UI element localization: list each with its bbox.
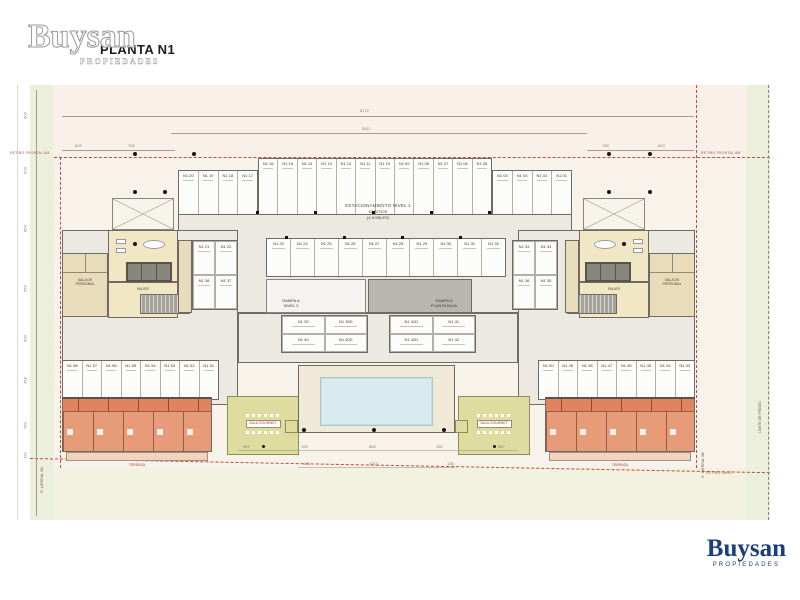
- column-marker: [459, 236, 462, 239]
- parking-stall: N1 43: [676, 361, 695, 399]
- parking-stall: N1 40D: [325, 334, 368, 352]
- elevator-cab: [142, 264, 155, 280]
- dim-left-4: 600: [23, 328, 28, 350]
- elevator-cab: [128, 264, 141, 280]
- stall-pairs-right: N1 33N1 34N1 36N1 35: [512, 240, 558, 310]
- parking-stall: N1 03: [513, 171, 533, 214]
- parking-stall: N1 57: [83, 361, 103, 399]
- setback-line-right: [696, 85, 697, 468]
- column-dot: [163, 190, 167, 194]
- parking-stall: N1 46: [617, 361, 637, 399]
- dim-b1-4: 987: [498, 444, 505, 449]
- lobby-table: [594, 240, 616, 249]
- parking-stall: N1 21: [193, 241, 215, 275]
- central-floor: [238, 313, 518, 363]
- parking-stall: N1 41D: [390, 316, 433, 334]
- brand-watermark-sub: PROPIEDADES: [80, 57, 159, 66]
- stall-row-mid: N1 23N1 24N1 25N1 26N1 27N1 28N1 29N1 30…: [266, 238, 506, 277]
- dim-b1-1: 192: [301, 444, 308, 449]
- parking-stall: N1 20: [179, 171, 199, 214]
- parking-stall: N1 56: [102, 361, 122, 399]
- parking-stall: N1 53: [161, 361, 181, 399]
- wall-line: [672, 254, 673, 272]
- parking-stall: N1 04: [493, 171, 513, 214]
- parking-stall: N1 45: [637, 361, 657, 399]
- parking-stall: N1 24: [291, 239, 315, 276]
- utility-room-right: [565, 240, 579, 313]
- rear-setback-zone: [54, 468, 746, 520]
- parking-stall: N1 39: [282, 316, 325, 334]
- dim-798-right: 798: [602, 143, 609, 148]
- parking-stall: N1 40: [282, 334, 325, 352]
- parking-stall: N1 42: [433, 334, 476, 352]
- column-marker: [488, 211, 491, 214]
- dim-603-right: 603: [658, 143, 665, 148]
- parking-stall: N1 51: [200, 361, 219, 399]
- apartment-upper-rooms: [63, 399, 211, 412]
- elevators-right: [585, 262, 631, 282]
- dim-line: [587, 150, 694, 151]
- column-dot: [648, 190, 652, 194]
- parking-stall: N1 44: [656, 361, 676, 399]
- staff-room-right-label: SALA DE PERSONAL: [652, 278, 692, 286]
- dim-top-total: 8172: [360, 108, 369, 113]
- dim-b1-3: 190: [436, 444, 443, 449]
- dim-left-3: 650: [23, 278, 28, 300]
- shaft-marker-left: [112, 198, 174, 230]
- gourmet-chairs: [246, 431, 281, 434]
- parking-stall: N1 39D: [325, 316, 368, 334]
- palier-right-label: PALIER: [580, 287, 648, 291]
- parking-stall: N1 17: [238, 171, 257, 214]
- parking-stall: N1 50: [539, 361, 559, 399]
- dim-line: [298, 467, 455, 468]
- dim-line: [238, 450, 518, 451]
- footer-logo: Buysan PROPIEDADES: [707, 536, 786, 568]
- lobby-sofa: [633, 239, 643, 244]
- setback-line-left: [60, 157, 61, 468]
- dim-b2-2: 136: [447, 461, 454, 466]
- column-dot: [442, 428, 446, 432]
- elevator-cab: [587, 264, 600, 280]
- parking-stall: N1 25: [315, 239, 339, 276]
- retiro-frontal-left-label: RETIRO FRONTAL 8M: [10, 151, 49, 155]
- deck-planter-right: [455, 420, 468, 433]
- column-marker: [343, 236, 346, 239]
- apartment-furniture: [550, 429, 690, 435]
- dim-left-0: 800: [23, 105, 28, 127]
- lobby-table: [143, 240, 165, 249]
- parking-stall: N1 28: [387, 239, 411, 276]
- parking-stall: N1 38: [193, 275, 215, 309]
- column-dot: [262, 445, 265, 448]
- parking-stall: N1 01: [552, 171, 571, 214]
- stall-row-top-right: N1 04N1 03N1 02N1 01: [492, 170, 572, 215]
- dim-left-5: 458: [23, 370, 28, 392]
- gourmet-room-right: SALA GOURMET: [458, 396, 530, 455]
- column-dot: [372, 428, 376, 432]
- column-dot: [302, 428, 306, 432]
- double-stalls-left: N1 39N1 39DN1 40N1 40D: [281, 315, 368, 353]
- parking-stall: N1 16: [259, 159, 278, 214]
- parking-stall: N1 06: [453, 159, 472, 214]
- parking-title: ESTACIONAMIENTO NIVEL 1 62 SITIOS (4 DOB…: [300, 203, 456, 220]
- wall-line: [650, 272, 694, 273]
- wall-line: [63, 272, 107, 273]
- wall-line: [85, 254, 86, 272]
- parking-stall: N1 18: [219, 171, 239, 214]
- elevator-cab: [601, 264, 614, 280]
- parking-stall: N1 26: [339, 239, 363, 276]
- ramp-to-level2: RAMPA A NIVEL 2: [266, 279, 366, 313]
- apartment-furniture: [67, 429, 207, 435]
- double-stalls-right: N1 41DN1 41N1 42DN1 42: [389, 315, 476, 353]
- gourmet-chairs: [477, 414, 512, 417]
- ramp-right-label: RAMPA A PLANTA BAJA: [421, 299, 467, 309]
- column-dot: [133, 152, 137, 156]
- parking-stall: N1 27: [363, 239, 387, 276]
- gourmet-chairs: [246, 414, 281, 417]
- dim-line: [62, 150, 175, 151]
- apartments-right: [545, 397, 695, 452]
- elevator-cab: [157, 264, 170, 280]
- palier-left-label: PALIER: [109, 287, 177, 291]
- parking-stall: N1 30: [434, 239, 458, 276]
- parking-stall: N1 37: [215, 275, 237, 309]
- parking-stall: N1 58: [63, 361, 83, 399]
- lobby-sofa: [633, 248, 643, 253]
- parking-stall: N1 35: [535, 275, 557, 309]
- dim-798-left: 798: [128, 143, 135, 148]
- dim-b1-0: 987: [243, 444, 250, 449]
- parking-stall: N1 54: [141, 361, 161, 399]
- dim-left-1: 629: [23, 160, 28, 182]
- frontal-setback-zone: [54, 85, 746, 157]
- parking-stall: N1 23: [267, 239, 291, 276]
- lobby-sofa: [116, 239, 126, 244]
- elevator-cab: [616, 264, 629, 280]
- stall-row-bottom-left: N1 58N1 57N1 56N1 55N1 54N1 53N1 52N1 51: [62, 360, 219, 400]
- staff-room-left-label: SALA DE PERSONAL: [65, 278, 105, 286]
- lobby-sofa: [116, 248, 126, 253]
- staff-room-left: SALA DE PERSONAL: [62, 253, 108, 317]
- parking-stall: N1 32: [482, 239, 505, 276]
- parking-stall: N1 19: [199, 171, 219, 214]
- gourmet-chairs: [477, 431, 512, 434]
- column-marker: [256, 211, 259, 214]
- dim-b2-0: 136: [303, 461, 310, 466]
- stall-row-top-left: N1 20N1 19N1 18N1 17: [178, 170, 258, 215]
- dim-b1-2: 665: [369, 444, 376, 449]
- terrace-left-label: TERRAZA: [129, 463, 145, 467]
- lateral-left-label: R. LATERAL 3M: [40, 460, 44, 500]
- parking-title-line3: (4 DOBLES): [300, 215, 456, 221]
- parking-stall: N1 36: [513, 275, 535, 309]
- terrace-strip-right: TERRAZA: [549, 452, 691, 461]
- elevators-left: [126, 262, 172, 282]
- dim-left-7: 192: [23, 445, 28, 467]
- stall-pairs-left: N1 21N1 22N1 38N1 37: [192, 240, 238, 310]
- retiro-rear-label: RETIRO LAGO: [706, 471, 732, 475]
- retiro-frontal-right-label: RETIRO FRONTAL 8M: [701, 151, 740, 155]
- column-dot: [133, 190, 137, 194]
- property-limit-label: LIMITE DE PREDIO: [758, 397, 762, 437]
- pool: [320, 377, 433, 426]
- lateral-right-label: R. LATERAL 3M: [701, 445, 705, 485]
- parking-stall: N1 02: [533, 171, 553, 214]
- dim-left-2: 854: [23, 218, 28, 240]
- brand-watermark: Buysan: [28, 18, 136, 56]
- column-dot: [648, 152, 652, 156]
- parking-stall: N1 22: [215, 241, 237, 275]
- parking-stall: N1 42D: [390, 334, 433, 352]
- dim-b2-1: 1013: [369, 461, 378, 466]
- column-dot: [192, 152, 196, 156]
- ramp-to-ground-floor: RAMPA A PLANTA BAJA: [368, 279, 472, 313]
- utility-room-left: [178, 240, 192, 313]
- parking-stall: N1 47: [598, 361, 618, 399]
- parking-stall: N1 05: [473, 159, 491, 214]
- column-marker: [401, 236, 404, 239]
- ramp-left-label: RAMPA A NIVEL 2: [271, 299, 311, 309]
- dim-line: [171, 133, 587, 134]
- parking-stall: N1 34: [535, 241, 557, 275]
- footer-brand-name: Buysan: [707, 536, 786, 561]
- terrace-right-label: TERRAZA: [612, 463, 628, 467]
- shaft-marker-right: [583, 198, 645, 230]
- parking-stall: N1 31: [458, 239, 482, 276]
- parking-stall: N1 49: [559, 361, 579, 399]
- property-limit-line: [768, 85, 769, 520]
- footer-brand-sub: PROPIEDADES: [707, 562, 786, 568]
- apartments-left: [62, 397, 212, 452]
- gourmet-right-label: SALA GOURMET: [459, 421, 529, 425]
- stall-row-bottom-right: N1 50N1 49N1 48N1 47N1 46N1 45N1 44N1 43: [538, 360, 695, 400]
- dim-left-6: 783: [23, 415, 28, 437]
- parking-stall: N1 55: [122, 361, 142, 399]
- parking-stall: N1 33: [513, 241, 535, 275]
- parking-stall: N1 52: [180, 361, 200, 399]
- column-marker: [285, 236, 288, 239]
- deck-planter-left: [285, 420, 298, 433]
- parking-stall: N1 48: [578, 361, 598, 399]
- parking-stall: N1 41: [433, 316, 476, 334]
- apartment-upper-rooms: [546, 399, 694, 412]
- staff-room-right: SALA DE PERSONAL: [649, 253, 695, 317]
- dim-top-inner: 5511: [362, 126, 371, 131]
- column-dot: [607, 190, 611, 194]
- column-dot: [133, 242, 137, 246]
- dim-603-left: 603: [75, 143, 82, 148]
- column-dot: [622, 242, 626, 246]
- terrace-strip-left: TERRAZA: [66, 452, 208, 461]
- column-dot: [493, 445, 496, 448]
- dim-line: [62, 116, 694, 117]
- parking-stall: N1 15: [278, 159, 297, 214]
- column-dot: [607, 152, 611, 156]
- setback-strip-right: [746, 85, 770, 520]
- parking-stall: N1 29: [410, 239, 434, 276]
